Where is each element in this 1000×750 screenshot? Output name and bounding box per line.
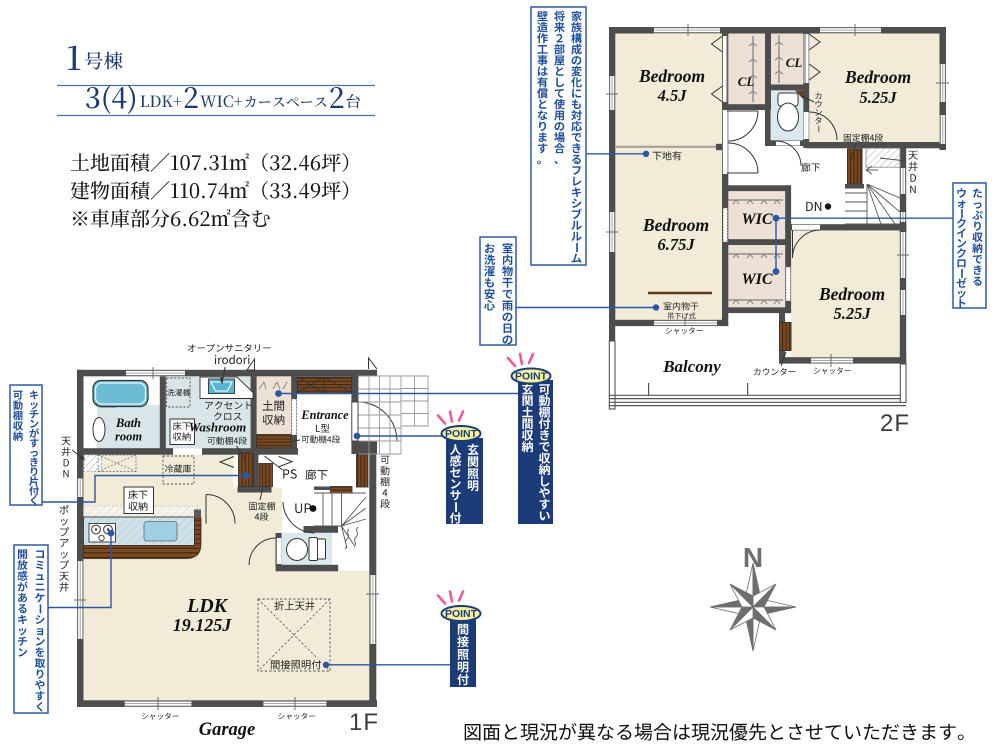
svg-text:5.25J: 5.25J: [859, 88, 897, 107]
svg-text:5.25J: 5.25J: [833, 304, 871, 323]
svg-text:Entrance: Entrance: [300, 408, 349, 422]
svg-text:POINT: POINT: [515, 371, 548, 383]
svg-text:2F: 2F: [880, 410, 910, 437]
svg-text:Bedroom: Bedroom: [638, 66, 705, 86]
svg-text:Bedroom: Bedroom: [818, 284, 885, 304]
svg-text:Washroom: Washroom: [189, 420, 247, 435]
svg-text:WIC: WIC: [741, 211, 772, 228]
svg-text:LDK: LDK: [186, 595, 229, 617]
svg-text:19.125J: 19.125J: [173, 615, 233, 635]
svg-text:Balcony: Balcony: [662, 357, 721, 376]
svg-text:4.5J: 4.5J: [657, 86, 688, 105]
svg-text:Garage: Garage: [199, 720, 256, 740]
svg-text:POINT: POINT: [445, 608, 478, 620]
svg-text:room: room: [115, 430, 142, 444]
svg-text:6.75J: 6.75J: [657, 235, 695, 254]
svg-text:1F: 1F: [349, 709, 379, 736]
svg-text:Bath: Bath: [115, 416, 141, 430]
svg-text:Bedroom: Bedroom: [844, 67, 911, 87]
svg-text:WIC: WIC: [741, 271, 772, 288]
svg-text:POINT: POINT: [445, 428, 478, 440]
svg-text:Bedroom: Bedroom: [642, 215, 709, 235]
svg-text:CL: CL: [738, 74, 755, 89]
svg-text:CL: CL: [786, 55, 803, 70]
